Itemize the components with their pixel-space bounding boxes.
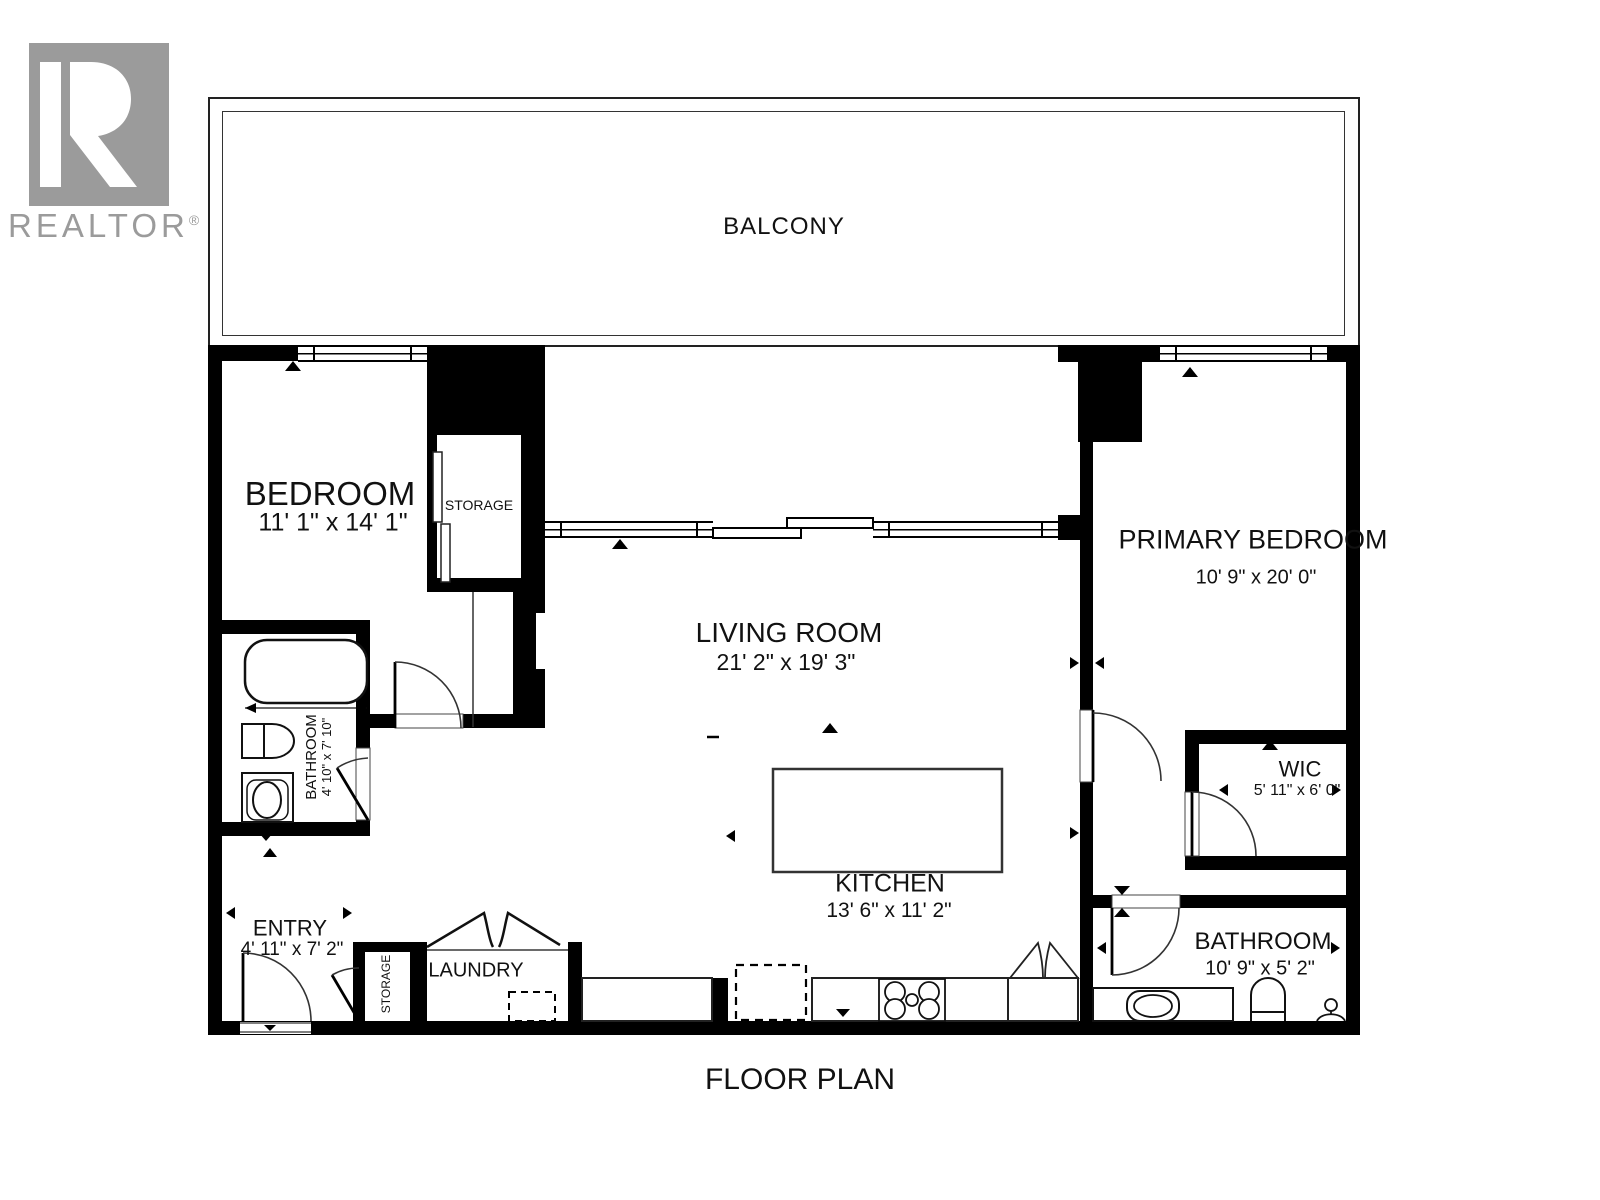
label-bedroom-dims: 11' 1" x 14' 1" xyxy=(258,509,407,538)
floor-plan-page: REALTOR® xyxy=(0,0,1600,1200)
shower-icon xyxy=(1317,999,1345,1021)
label-kitchen: KITCHEN xyxy=(835,870,945,899)
label-living-room-dims: 21' 2" x 19' 3" xyxy=(717,649,856,675)
label-bedroom: BEDROOM xyxy=(245,475,416,513)
kitchen-counters xyxy=(582,978,1078,1021)
closet-slider xyxy=(433,452,450,582)
label-storage-entry: STORAGE xyxy=(380,955,394,1013)
dimension-arrows xyxy=(226,361,1341,1031)
page-title: FLOOR PLAN xyxy=(705,1063,895,1098)
sink-vanity xyxy=(242,773,293,822)
vanity-main xyxy=(1093,988,1233,1021)
label-kitchen-dims: 13' 6" x 11' 2" xyxy=(826,899,951,923)
washer-dashed xyxy=(509,992,555,1021)
dishwasher-dashed xyxy=(736,965,806,1020)
sliding-door xyxy=(713,518,873,538)
bathtub xyxy=(245,640,367,708)
label-living-room: LIVING ROOM xyxy=(696,617,883,649)
label-primary-bedroom-dims: 10' 9" x 20' 0" xyxy=(1196,567,1317,590)
label-laundry: LAUNDRY xyxy=(428,960,523,983)
label-wic: WIC xyxy=(1279,756,1322,781)
toilet xyxy=(242,724,294,758)
label-storage-top: STORAGE xyxy=(445,497,513,513)
cooktop xyxy=(879,979,945,1021)
label-wic-dims: 5' 11" x 6' 0" xyxy=(1254,782,1341,800)
label-bathroom-left-dims: 4' 10" x 7' 10" xyxy=(320,714,335,800)
label-bathroom-main: BATHROOM xyxy=(1195,928,1332,956)
label-balcony: BALCONY xyxy=(723,213,845,241)
label-entry: ENTRY xyxy=(253,915,327,940)
kitchen-island xyxy=(773,769,1002,872)
double-door xyxy=(1010,943,1078,978)
label-bathroom-main-dims: 10' 9" x 5' 2" xyxy=(1205,958,1315,981)
label-primary-bedroom: PRIMARY BEDROOM xyxy=(1108,524,1398,555)
bifold-door xyxy=(427,913,568,950)
label-bathroom-left-name: BATHROOM xyxy=(303,714,320,800)
label-entry-dims: 4' 11" x 7' 2" xyxy=(241,939,344,961)
entry-threshold xyxy=(240,1022,311,1034)
label-bathroom-left: BATHROOM 4' 10" x 7' 10" xyxy=(303,714,335,800)
toilet-main xyxy=(1251,978,1285,1021)
plan-graphics xyxy=(0,0,1600,1200)
